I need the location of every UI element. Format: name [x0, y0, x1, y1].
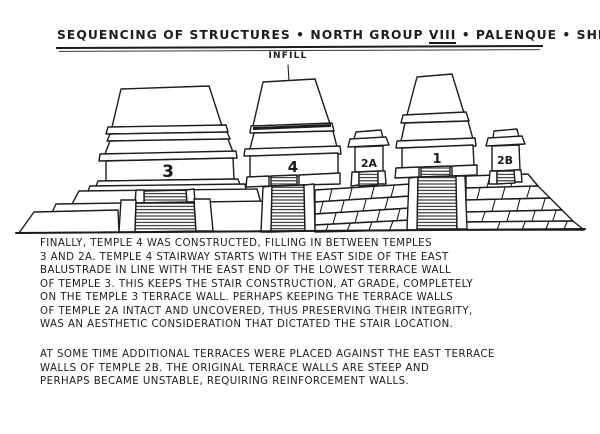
temple-4-stair-balustrade-right	[304, 184, 315, 231]
temple-1-stair-top	[421, 166, 450, 177]
temple-2a-structure: 2A	[348, 130, 389, 186]
notes-paragraph-1: FINALLY, TEMPLE 4 WAS CONSTRUCTED, FILLI…	[40, 237, 570, 332]
notes-line: WALLS OF TEMPLE 2B. THE ORIGINAL TERRACE…	[40, 362, 570, 376]
notes-line: ON THE TEMPLE 3 TERRACE WALL. PERHAPS KE…	[40, 291, 570, 305]
notes-line: OF TEMPLE 2A INTACT AND UNCOVERED, THUS …	[40, 305, 570, 319]
temple-2a-stair	[359, 171, 378, 186]
notes-line: FINALLY, TEMPLE 4 WAS CONSTRUCTED, FILLI…	[40, 237, 570, 251]
temple-2a-label: 2A	[361, 157, 378, 170]
temple-4-stair-top	[271, 175, 297, 186]
temple-1-structure: 1	[395, 74, 477, 230]
temple-2b-label: 2B	[497, 154, 513, 167]
terrace-courses-2a	[315, 184, 411, 232]
temple-3-structure: 3	[19, 86, 271, 233]
sheet-page: SEQUENCING OF STRUCTURES • NORTH GROUP V…	[0, 0, 600, 434]
temple-3-stair-balustrade-right	[194, 199, 213, 231]
notes-line: OF TEMPLE 3. THIS KEEPS THE STAIR CONSTR…	[40, 278, 570, 292]
temple-3-roof-comb	[112, 86, 222, 127]
temple-3-left-step	[19, 210, 119, 233]
terrace-courses-2b	[466, 174, 584, 230]
temple-3-label: 3	[162, 162, 174, 182]
notes-paragraph-2: AT SOME TIME ADDITIONAL TERRACES WERE PL…	[40, 348, 570, 389]
temple-1-label: 1	[432, 152, 441, 167]
notes-line: WAS AN AESTHETIC CONSIDERATION THAT DICT…	[40, 318, 570, 332]
notes-line: PERHAPS BECAME UNSTABLE, REQUIRING REINF…	[40, 375, 570, 389]
temple-1-grand-stair	[417, 176, 457, 230]
temple-4-label: 4	[288, 158, 298, 176]
notes-line: BALUSTRADE IN LINE WITH THE EAST END OF …	[40, 264, 570, 278]
temple-1-roof-comb	[407, 74, 464, 115]
notes-line: AT SOME TIME ADDITIONAL TERRACES WERE PL…	[40, 348, 570, 362]
temple-2b-structure: 2B	[486, 129, 525, 184]
temple-3-stair-balustrade-left	[119, 200, 136, 232]
temple-2b-stair	[497, 170, 515, 184]
temple-1-stair-balustrade-right	[456, 176, 467, 229]
temple-4-roof-comb	[253, 79, 330, 126]
notes-line: 3 AND 2A. TEMPLE 4 STAIRWAY STARTS WITH …	[40, 251, 570, 265]
temple-4-stair-balustrade-left	[261, 186, 272, 232]
temple-4-grand-stair	[271, 185, 305, 232]
temple-3-upper-stair	[144, 190, 187, 203]
temple-1-stair-balustrade-left	[407, 177, 418, 230]
temple-3-grand-stair	[135, 202, 196, 232]
